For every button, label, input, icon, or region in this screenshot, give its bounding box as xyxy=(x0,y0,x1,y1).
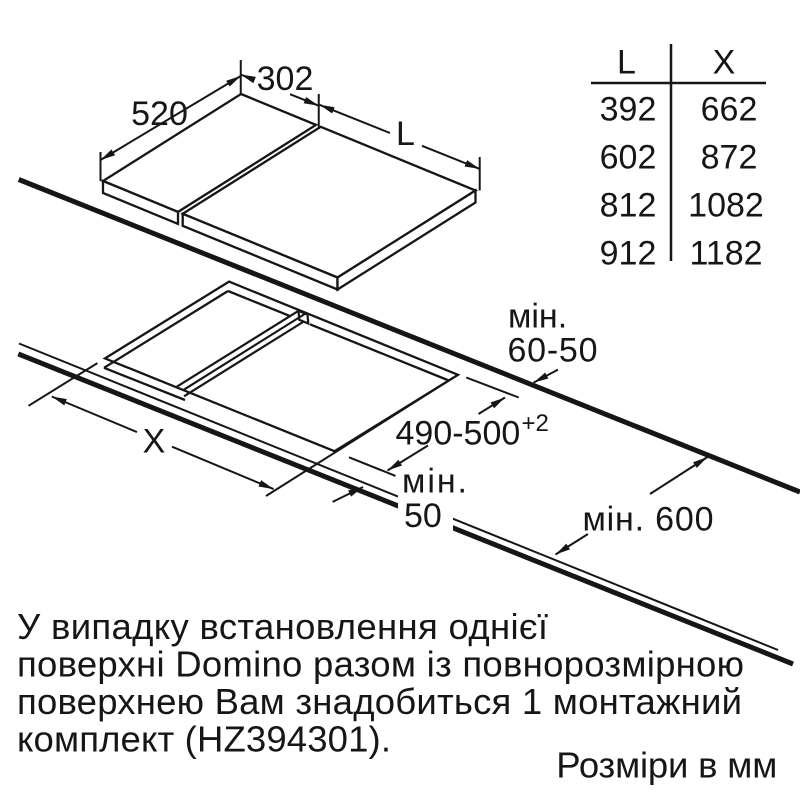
svg-text:Розміри в мм: Розміри в мм xyxy=(556,745,777,786)
svg-text:50: 50 xyxy=(404,497,442,535)
svg-text:L: L xyxy=(617,43,636,81)
svg-text:872: 872 xyxy=(701,138,758,176)
svg-text:662: 662 xyxy=(701,90,758,128)
svg-text:У випадку встановлення однієї: У випадку встановлення однієї xyxy=(17,606,548,647)
svg-text:812: 812 xyxy=(600,186,657,224)
svg-text:мін. 600: мін. 600 xyxy=(583,501,714,539)
svg-text:поверхні Domino разом із повно: поверхні Domino разом із повнорозмірною xyxy=(17,644,744,685)
svg-text:392: 392 xyxy=(600,90,657,128)
svg-text:мін.: мін. xyxy=(508,298,567,336)
svg-text:поверхнею Вам знадобиться 1 мо: поверхнею Вам знадобиться 1 монтажний xyxy=(17,681,742,722)
svg-text:+2: +2 xyxy=(522,410,549,437)
svg-text:60-50: 60-50 xyxy=(508,332,598,370)
svg-text:L: L xyxy=(396,115,415,153)
svg-text:912: 912 xyxy=(600,234,657,272)
svg-text:X: X xyxy=(143,423,166,461)
svg-text:X: X xyxy=(713,43,736,81)
svg-text:комплект (HZ394301).: комплект (HZ394301). xyxy=(17,719,391,760)
svg-text:1082: 1082 xyxy=(688,186,764,224)
svg-text:1182: 1182 xyxy=(689,234,762,272)
svg-text:602: 602 xyxy=(600,138,657,176)
svg-text:490-500: 490-500 xyxy=(396,415,521,453)
svg-text:520: 520 xyxy=(131,95,188,133)
svg-text:мін.: мін. xyxy=(402,463,467,501)
svg-text:302: 302 xyxy=(257,60,314,98)
